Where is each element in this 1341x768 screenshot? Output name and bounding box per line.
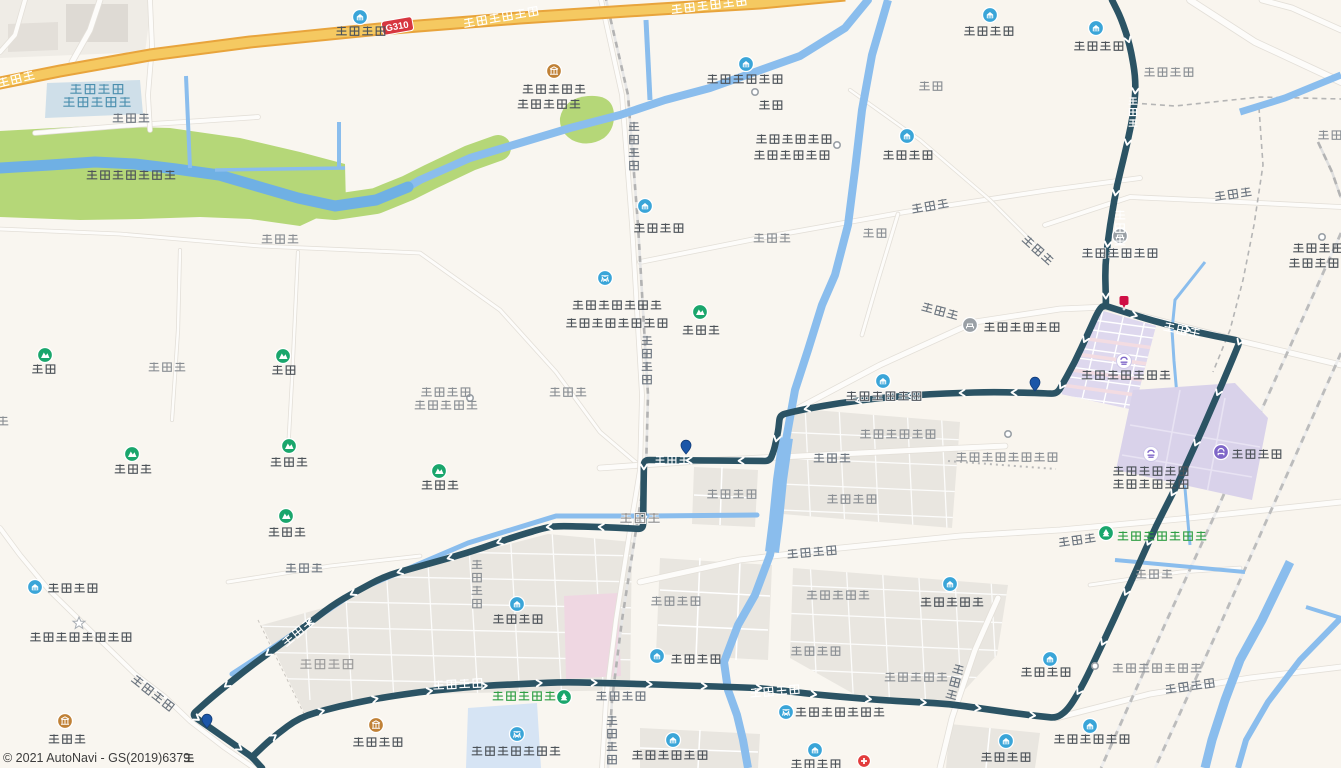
svg-text:© 2021 AutoNavi - GS(2019)6379: © 2021 AutoNavi - GS(2019)6379 (3, 751, 190, 765)
